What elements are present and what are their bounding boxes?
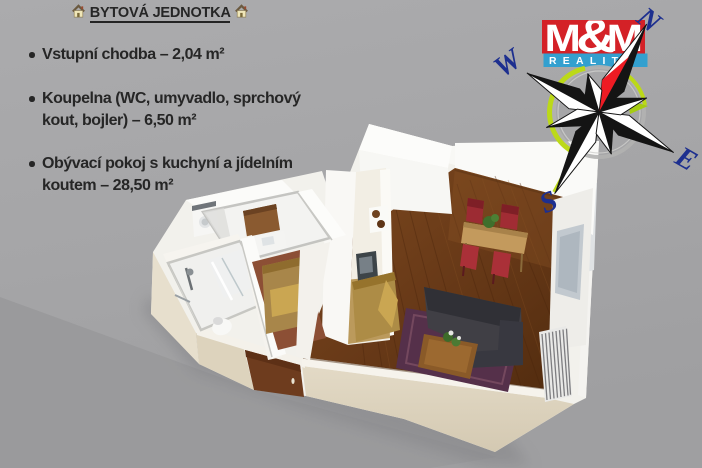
svg-text:E: E (669, 140, 702, 178)
svg-text:W: W (488, 42, 529, 84)
